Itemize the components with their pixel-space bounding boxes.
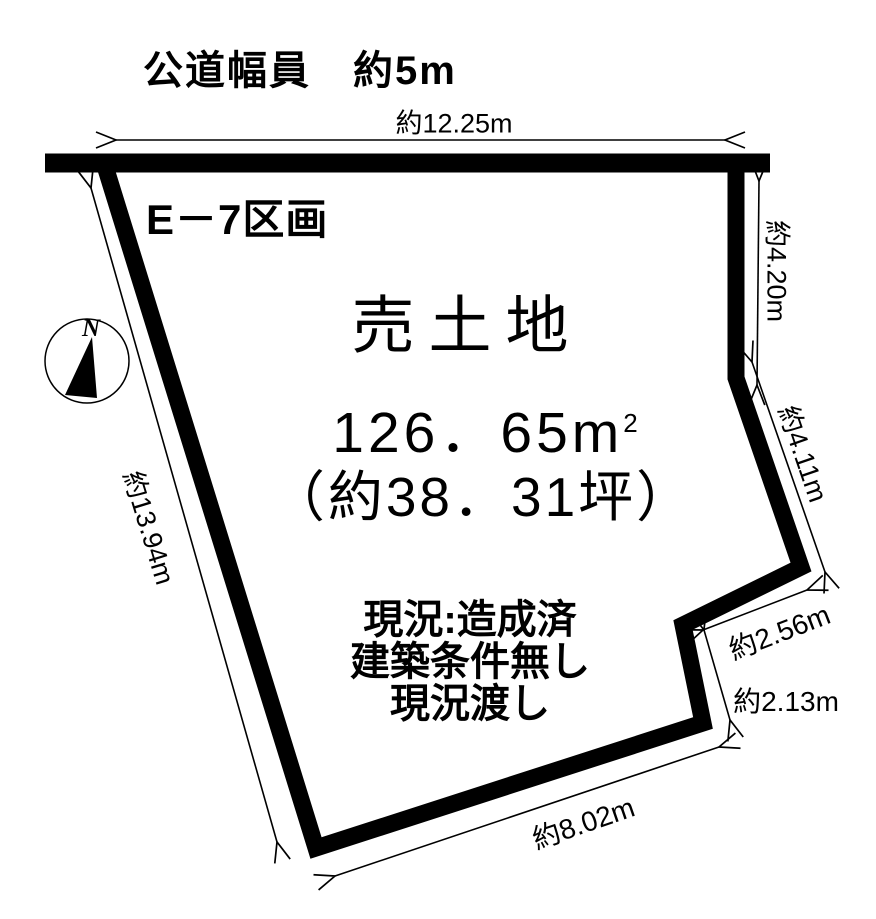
road-width-title: 公道幅員 約5m xyxy=(143,38,457,96)
land-plot-diagram: 公道幅員 約5m 約12.25m 約4.20m 約4.11m 約2.56m 約2… xyxy=(0,0,876,919)
dimension-label-road-frontage: 約12.25m xyxy=(395,102,512,141)
dimension-line-bottom xyxy=(335,747,719,876)
area-sqm-superscript: 2 xyxy=(623,408,637,438)
sale-type-label: 売土地 xyxy=(338,276,583,367)
dimension-line-left xyxy=(91,188,277,842)
dimension-label-notch-lower: 約2.13m xyxy=(733,680,839,720)
area-tsubo-label: （約38．31坪） xyxy=(270,452,694,532)
lot-name-label: E－7区画 xyxy=(146,186,328,247)
compass-needle-icon xyxy=(65,337,97,398)
dimension-label-right-upper: 約4.20m xyxy=(760,220,799,322)
compass-north-label: N xyxy=(82,315,100,343)
status-text-block: 現況:造成済 建築条件無し 現況渡し xyxy=(350,599,590,725)
status-line-2: 建築条件無し xyxy=(350,641,590,683)
status-line-1: 現況:造成済 xyxy=(350,599,590,641)
status-line-3: 現況渡し xyxy=(350,683,590,725)
